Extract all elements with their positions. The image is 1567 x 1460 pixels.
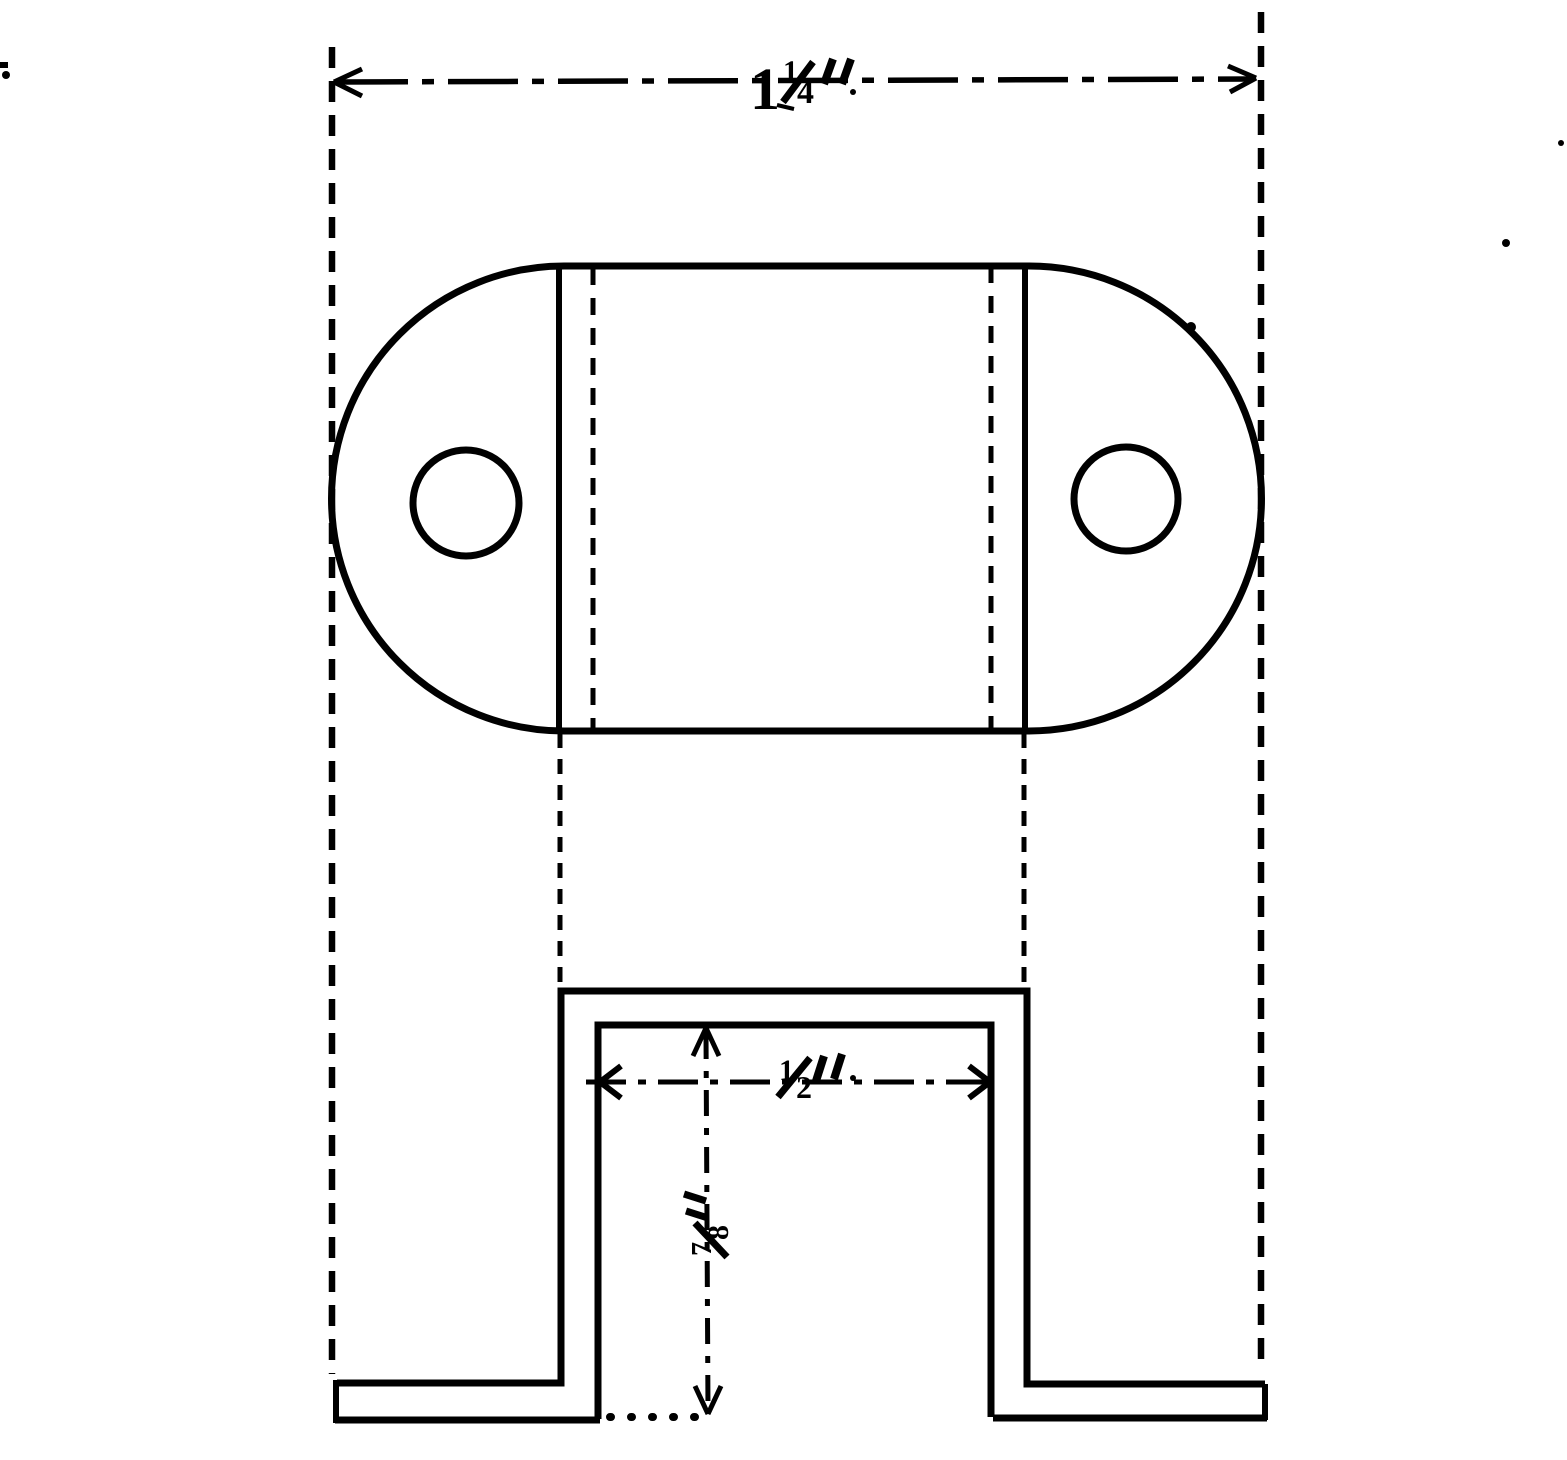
svg-text:8: 8 — [702, 1225, 735, 1240]
svg-text:2: 2 — [796, 1069, 812, 1105]
svg-text:1: 1 — [750, 56, 780, 122]
svg-text:4: 4 — [797, 74, 814, 111]
